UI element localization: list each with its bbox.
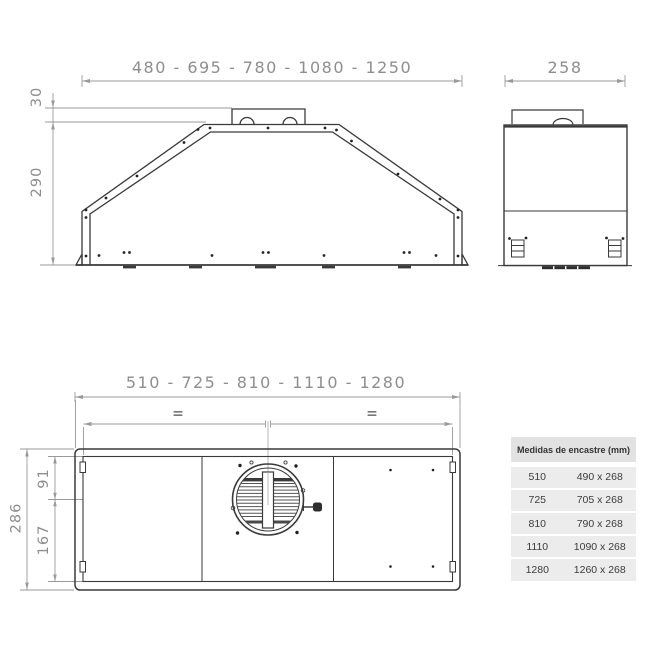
handle-knob [313,503,322,512]
side-body-outline [498,110,632,266]
model-cell: 1280 [511,564,564,576]
size-cell: 490 x 268 [564,471,637,483]
front-height-dimension [40,93,232,265]
bottom-width-dimension [75,392,460,448]
equal-mark-right: = [366,406,378,422]
cutout-table-header: Medidas de encastre (mm) [511,437,636,462]
clip [80,462,86,473]
base-feet [123,266,411,269]
arrowhead [51,101,55,109]
side-duct-bump [553,119,573,125]
side-view: 258 [498,58,632,269]
model-cell: 810 [511,518,564,530]
arrowhead [51,122,55,130]
bottom-front-depth-label: 91 [36,468,52,488]
mount-tab-left [76,254,82,265]
cutout-table-body: 510 490 x 268 725 705 x 268 810 790 x 26… [511,467,636,581]
front-body-height-label: 290 [29,167,45,198]
bottom-rear-depth-label: 167 [36,525,52,556]
table-row: 810 790 x 268 [511,513,636,534]
arrowhead [82,79,90,83]
arrowhead [505,79,513,83]
size-cell: 790 x 268 [564,518,637,530]
arrowhead [53,457,57,464]
clip [450,562,456,573]
side-clip-left [512,240,525,257]
side-clip-screws [508,237,624,240]
front-width-label: 480 - 695 - 780 - 1080 - 1250 [132,58,412,77]
arrowhead [75,395,83,399]
arrowhead [452,395,460,399]
clip [80,562,86,573]
duct-bump [283,118,297,125]
cutout-table: Medidas de encastre (mm) 510 490 x 268 7… [511,437,636,582]
bottom-view: 510 - 725 - 810 - 1110 - 1280 = = [9,373,461,590]
bottom-total-depth-label: 286 [9,503,25,534]
model-cell: 1110 [511,541,564,553]
arrowhead [445,422,453,426]
arrowhead [25,449,29,457]
size-cell: 705 x 268 [564,494,637,506]
model-cell: 725 [511,494,564,506]
arrowhead [617,79,625,83]
front-rivets [85,127,460,258]
front-hood-outline [76,109,468,265]
arrowhead [51,258,55,266]
arrowhead [84,422,92,426]
side-depth-label: 258 [547,58,582,77]
fan-opening [231,461,322,535]
arrowhead [53,500,57,507]
clip [450,462,456,473]
side-clip-right [609,240,622,257]
arrowhead [454,79,462,83]
table-row: 725 705 x 268 [511,490,636,511]
model-cell: 510 [511,471,564,483]
front-duct-height-label: 30 [29,87,45,107]
damper-handle [304,503,323,512]
mount-tab-right [462,254,468,265]
equal-mark-left: = [172,406,184,422]
table-row: 1280 1260 x 268 [511,559,636,580]
duct-bump [240,118,254,125]
size-cell: 1090 x 268 [564,541,637,553]
arrowhead [25,583,29,591]
front-duct-box [232,109,305,125]
side-bottom-strip [542,266,590,269]
range-hood-dimension-sheet: 480 - 695 - 780 - 1080 - 1250 30 290 [0,0,650,650]
size-cell: 1260 x 268 [564,564,637,576]
bottom-panel-screws [389,469,434,568]
arrowhead [53,493,57,500]
arrowhead [53,575,57,582]
front-view: 480 - 695 - 780 - 1080 - 1250 30 290 [29,58,468,268]
table-row: 510 490 x 268 [511,467,636,488]
table-row: 1110 1090 x 268 [511,536,636,557]
bottom-width-label: 510 - 725 - 810 - 1110 - 1280 [126,373,406,392]
